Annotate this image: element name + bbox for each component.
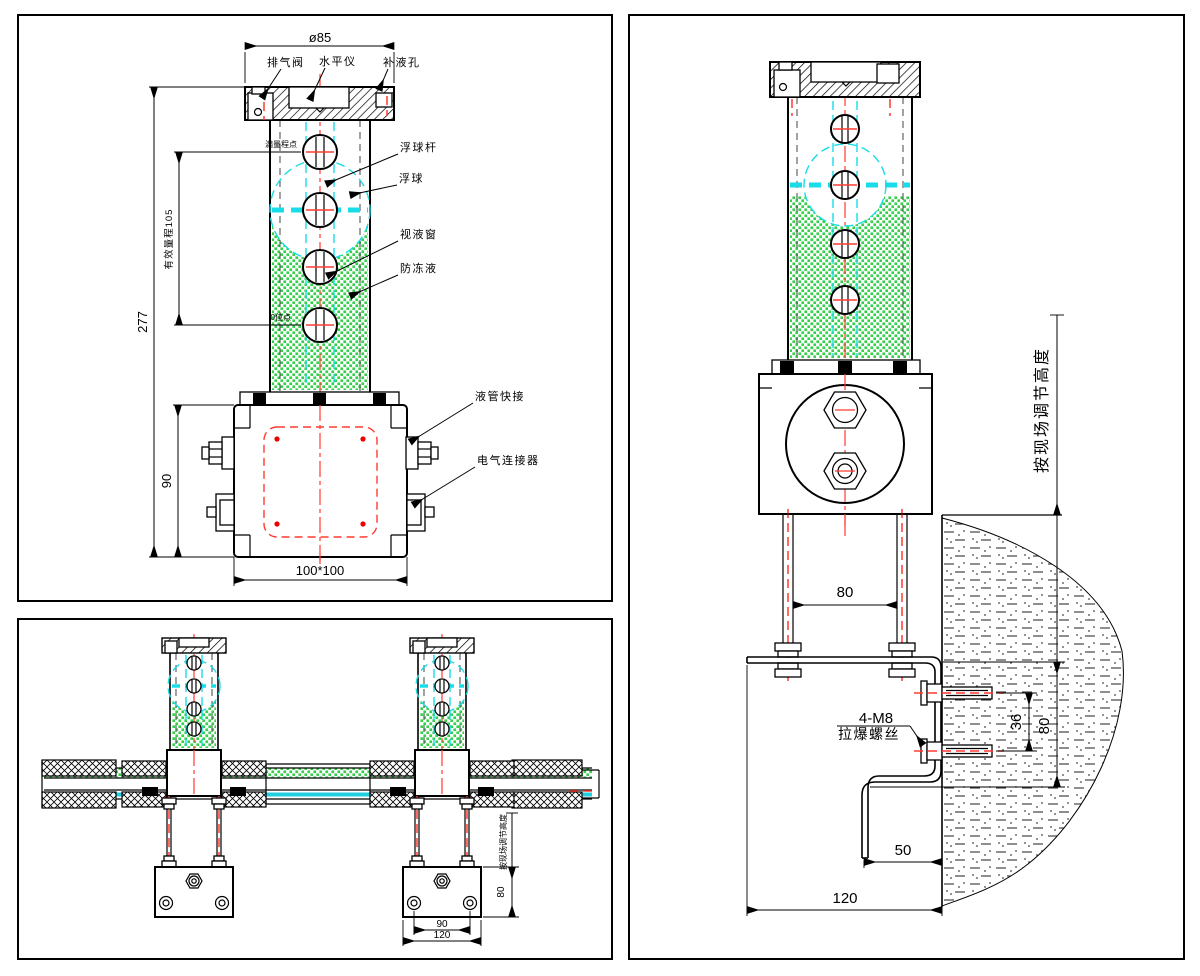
front-view-panel: ø85 277 有效量程105 满量程点 0位点 90 100*100 排气阀 … bbox=[17, 14, 613, 602]
dim-width-120: 120 bbox=[747, 665, 942, 916]
exhaust-valve-label: 排气阀 bbox=[267, 55, 305, 69]
float-label: 浮球 bbox=[399, 171, 424, 185]
anchor-name-text: 拉爆螺丝 bbox=[838, 726, 900, 742]
level-gauge-label: 水平仪 bbox=[319, 55, 357, 68]
piping-adjust-note: 按现场调节高度 bbox=[498, 814, 508, 870]
antifreeze-label: 防冻液 bbox=[400, 261, 438, 275]
hose-end-fitting-left bbox=[42, 760, 116, 808]
front-view-drawing: ø85 277 有效量程105 满量程点 0位点 90 100*100 排气阀 … bbox=[19, 16, 611, 600]
bracket-width-text: 120 bbox=[832, 890, 857, 907]
tube-collar-side bbox=[772, 360, 920, 374]
electrical-connector-right bbox=[407, 494, 434, 531]
level-gauge-recess bbox=[289, 87, 349, 108]
dim-overall-text: 277 bbox=[135, 311, 150, 333]
tube-collar bbox=[240, 392, 399, 405]
gauge-instrument bbox=[122, 634, 266, 917]
bracket-height-text: 80 bbox=[1036, 718, 1053, 735]
electrical-connector-left bbox=[207, 494, 234, 531]
full-scale-point-label: 满量程点 bbox=[265, 139, 297, 149]
piping-hole-spacing-text: 90 bbox=[436, 919, 448, 930]
dim-overall-277: 277 bbox=[135, 87, 245, 557]
pipe-quick-connector-label: 液管快接 bbox=[475, 389, 525, 403]
float-rod-label: 浮球杆 bbox=[400, 140, 438, 154]
zero-point-label: 0位点 bbox=[271, 312, 291, 322]
piping-view-panel: 按现场调节高度 80 90 120 bbox=[17, 618, 613, 960]
refill-hole-label: 补液孔 bbox=[383, 55, 421, 69]
sight-window-label: 视液窗 bbox=[400, 227, 438, 241]
body-block-side bbox=[759, 374, 932, 536]
side-view-drawing: 80 36 80 按现场调节高度 4-M8 拉爆螺丝 50 120 bbox=[630, 16, 1183, 958]
top-cap-side bbox=[770, 62, 920, 116]
base-block bbox=[234, 405, 407, 564]
dim-lip-50: 50 bbox=[864, 842, 942, 868]
anchor-bolt-label: 4-M8 拉爆螺丝 bbox=[837, 710, 923, 745]
exhaust-valve-body bbox=[248, 93, 273, 120]
dim-stud-spacing-80: 80 bbox=[793, 584, 897, 605]
piping-plate-width-text: 120 bbox=[434, 930, 451, 941]
piping-view-drawing: 按现场调节高度 80 90 120 bbox=[19, 620, 611, 958]
anchor-spec-text: 4-M8 bbox=[859, 710, 893, 727]
wall-section bbox=[942, 515, 1123, 907]
dim-base-size-text: 100*100 bbox=[296, 563, 344, 578]
bolt-spacing-text: 36 bbox=[1008, 714, 1025, 731]
electrical-connector-label: 电气连接器 bbox=[477, 453, 540, 467]
top-cap bbox=[245, 87, 394, 120]
dim-base-height-text: 90 bbox=[159, 474, 174, 488]
dim-range-text: 有效量程105 bbox=[163, 209, 175, 270]
side-view-panel: 80 36 80 按现场调节高度 4-M8 拉爆螺丝 50 120 bbox=[628, 14, 1185, 960]
stud-spacing-text: 80 bbox=[837, 584, 854, 601]
lip-offset-text: 50 bbox=[895, 842, 912, 859]
gauge-instrument-2 bbox=[370, 634, 514, 917]
hose-end-fitting-right bbox=[512, 760, 599, 808]
adjust-height-note: 按现场调节高度 bbox=[1033, 347, 1051, 473]
dim-base-90: 90 bbox=[159, 405, 234, 557]
refill-hole-body bbox=[376, 93, 392, 107]
mounting-bracket bbox=[747, 657, 941, 858]
dim-diameter-text: ø85 bbox=[309, 30, 331, 45]
piping-plate-height-text: 80 bbox=[496, 886, 507, 898]
pipe-quick-connector-left bbox=[202, 437, 234, 469]
